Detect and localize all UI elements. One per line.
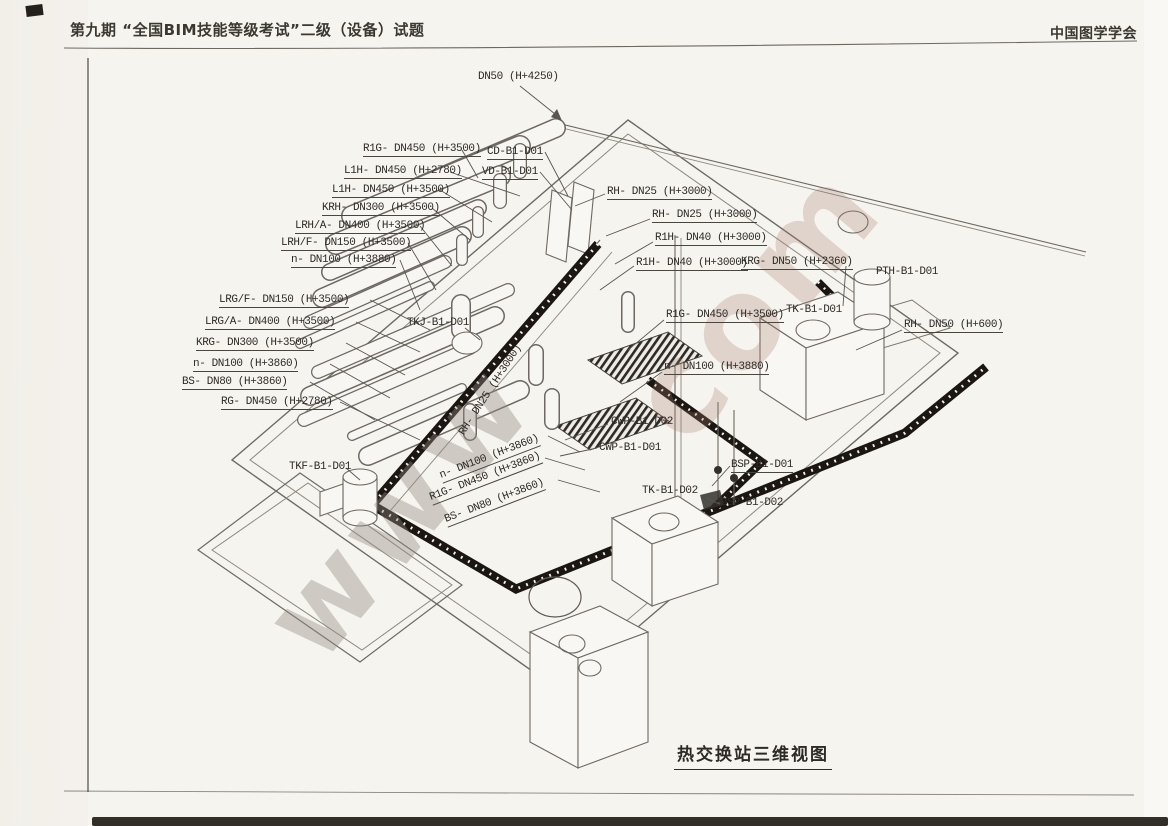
- scan-bottom-bar: [92, 817, 1168, 826]
- pipe-label: CD-B1-D01: [487, 146, 543, 160]
- pipe-label: RG- DN450 (H+2780): [221, 396, 333, 410]
- pipe-label: BSP-B1-D01: [731, 459, 793, 473]
- bottom-tank: [530, 606, 648, 768]
- tkf-tank: [320, 469, 377, 526]
- pipe-label: TK-B1-D02: [642, 485, 698, 497]
- pipe-label: BS- DN80 (H+3860): [182, 376, 287, 390]
- pipe-label: TKF-B1-D01: [289, 461, 351, 473]
- pipe-label: PTH-B1-D01: [876, 266, 938, 278]
- figure-caption: 热交换站三维视图: [674, 740, 832, 770]
- pipe-label: CWP-B1-D01: [599, 442, 661, 454]
- pipe-label: R1G- DN450 (H+3500): [363, 143, 481, 157]
- pipe-label: L1H- DN450 (H+2780): [344, 165, 462, 179]
- pipe-label: TKJ-B1-D01: [407, 317, 469, 329]
- pipe-label: KRG- DN50 (H+2360): [741, 256, 853, 270]
- isometric-piping-drawing: [0, 0, 1168, 826]
- pipe-label: BSP-B1-D02: [721, 497, 783, 509]
- pipe-label: DN50 (H+4250): [478, 71, 559, 83]
- scan-edge-line: [87, 58, 89, 792]
- air-duct-panels: [546, 182, 594, 262]
- pipe-label: R1G- DN450 (H+3500): [666, 309, 784, 323]
- pipe-label: CWP-B1-D02: [611, 416, 673, 428]
- header-rule: [64, 41, 1137, 49]
- pipe-label: n- DN100 (H+3880): [291, 254, 396, 268]
- pipe-label: VD-B1-D01: [482, 166, 538, 180]
- pipe-label: LRH/F- DN150 (H+3500): [281, 237, 411, 251]
- pipe-label: RH- DN50 (H+600): [904, 319, 1003, 333]
- pipe-label: R1H- DN40 (H+3000): [655, 232, 767, 246]
- tank-tk-b1-d02: [612, 496, 718, 606]
- pipe-label: L1H- DN450 (H+3500): [332, 184, 450, 198]
- pipe-label: n- DN100 (H+3860): [193, 358, 298, 372]
- paper-bottom-edge: [64, 791, 1134, 795]
- pipe-label: LRG/A- DN400 (H+3500): [205, 316, 335, 330]
- pipe-label: LRG/F- DN150 (H+3500): [219, 294, 349, 308]
- floor-drain-circle: [529, 577, 581, 617]
- pipe-label: LRH/A- DN400 (H+3500): [295, 220, 425, 234]
- pipe-label: R1H- DN40 (H+3000): [636, 257, 748, 271]
- pipe-label: TK-B1-D01: [786, 304, 842, 316]
- pipe-label: KRG- DN300 (H+3500): [196, 337, 314, 351]
- pipe-label: KRH- DN300 (H+3500): [322, 202, 440, 216]
- pipe-label: RH- DN25 (H+3000): [607, 186, 712, 200]
- pipe-label: RH- DN25 (H+3000): [652, 209, 757, 223]
- pipe-label: n- DN100 (H+3880): [664, 361, 769, 375]
- scan-corner-artifact: [25, 4, 43, 17]
- pth-pressure-tank: [854, 269, 890, 330]
- scanned-exam-sheet: 第九期 “全国BIM技能等级考试”二级（设备）试题 中国图学学会: [0, 0, 1168, 826]
